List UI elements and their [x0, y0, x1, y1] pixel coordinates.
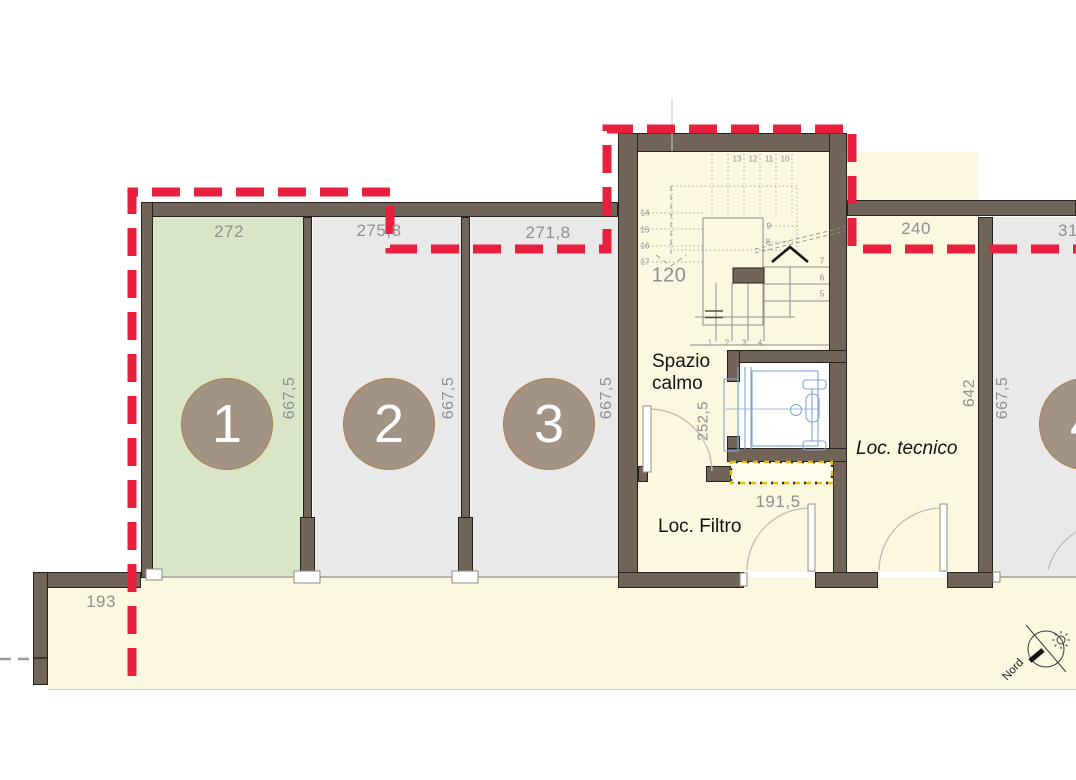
driveway-floor [48, 577, 1076, 690]
stair-step-number: 16 [641, 242, 650, 251]
dim-entry-width: 193 [86, 592, 116, 612]
wall-shaft-bottom [727, 448, 847, 462]
stair-step-number: 2 [725, 339, 729, 348]
wall-divider-2-3 [461, 217, 470, 519]
wall-door-stub-right [706, 466, 731, 482]
stair-step-number: 6 [820, 274, 824, 283]
dim-pit-width: 191,5 [755, 492, 800, 512]
stall-2-badge: 2 [343, 378, 435, 470]
stair-step-number: 8 [766, 238, 770, 247]
wall-stair-top [618, 133, 847, 152]
stall-2-number: 2 [374, 397, 404, 451]
wall-bottom-filtro [618, 572, 744, 588]
wall-bottom-end [33, 572, 141, 588]
stall-3-badge: 3 [503, 378, 595, 470]
stair-step-number: 9 [767, 222, 771, 231]
dim-stair-width: 120 [652, 265, 687, 288]
wall-stair-right [829, 133, 847, 462]
stair-step-number: 4 [758, 339, 762, 348]
wall-shaft-top [727, 350, 847, 363]
wall-door-stub-left [638, 466, 648, 482]
stall-4-number: 4 [1070, 397, 1076, 451]
dim-tecnico-width: 240 [901, 219, 931, 239]
wall-bottom-tecnico [947, 572, 993, 588]
wall-tecnico-right [978, 217, 993, 573]
dim-stall3-depth: 667,5 [598, 377, 616, 420]
dim-stall1-width: 272 [214, 222, 244, 242]
dim-tecnico-depth: 642 [961, 379, 979, 407]
stall-1-number: 1 [212, 397, 242, 451]
stair-step-number: 10 [781, 155, 790, 164]
stair-step-number: 7 [820, 257, 824, 266]
wall-stall1-left [141, 202, 153, 578]
dim-stall2-width: 275,8 [356, 221, 401, 241]
dim-stall3-width: 271,8 [525, 223, 570, 243]
wall-bottom-middle [815, 572, 878, 588]
wall-divider-1-2 [303, 217, 312, 519]
floor-plan-canvas: Nord 1 2 3 4 272 275,8 271,8 240 31 667,… [0, 0, 1076, 780]
stair-step-number: 17 [641, 258, 650, 267]
dim-stall2-depth: 667,5 [440, 377, 458, 420]
loc-filtro-label: Loc. Filtro [658, 516, 741, 538]
stair-step-number: 5 [820, 290, 824, 299]
dim-spazio-door: 252,5 [695, 401, 712, 441]
wall-divider-2-3-low [458, 517, 473, 574]
wall-divider-1-2-low [300, 517, 315, 574]
spazio-calmo-label-line2: calmo [652, 373, 703, 395]
wall-shaft-left-upper [727, 350, 740, 382]
wall-left-lower [33, 572, 48, 685]
stair-step-number: 13 [733, 155, 742, 164]
wall-stair-left [618, 133, 638, 588]
wall-top-right [847, 200, 1076, 216]
stair-step-number: 1 [708, 339, 712, 348]
spazio-calmo-label-line1: Spazio [652, 351, 710, 373]
elevator-shaft-interior [740, 363, 829, 448]
dim-stall1-depth: 667,5 [281, 377, 299, 420]
stair-step-number: 12 [749, 155, 758, 164]
stair-step-number: 11 [765, 155, 773, 164]
wall-corridor [833, 450, 847, 588]
stall-1-badge: 1 [181, 378, 273, 470]
stall-3-number: 3 [534, 397, 564, 451]
dim-stall4-depth: 667,5 [994, 377, 1012, 420]
loc-tecnico-label: Loc. tecnico [856, 438, 957, 460]
stair-step-number: 14 [641, 209, 650, 218]
dim-stall4-width: 31 [1058, 221, 1076, 241]
stair-step-number: 15 [641, 226, 650, 235]
stair-step-number: 3 [742, 339, 746, 348]
wall-top-left [141, 202, 618, 217]
